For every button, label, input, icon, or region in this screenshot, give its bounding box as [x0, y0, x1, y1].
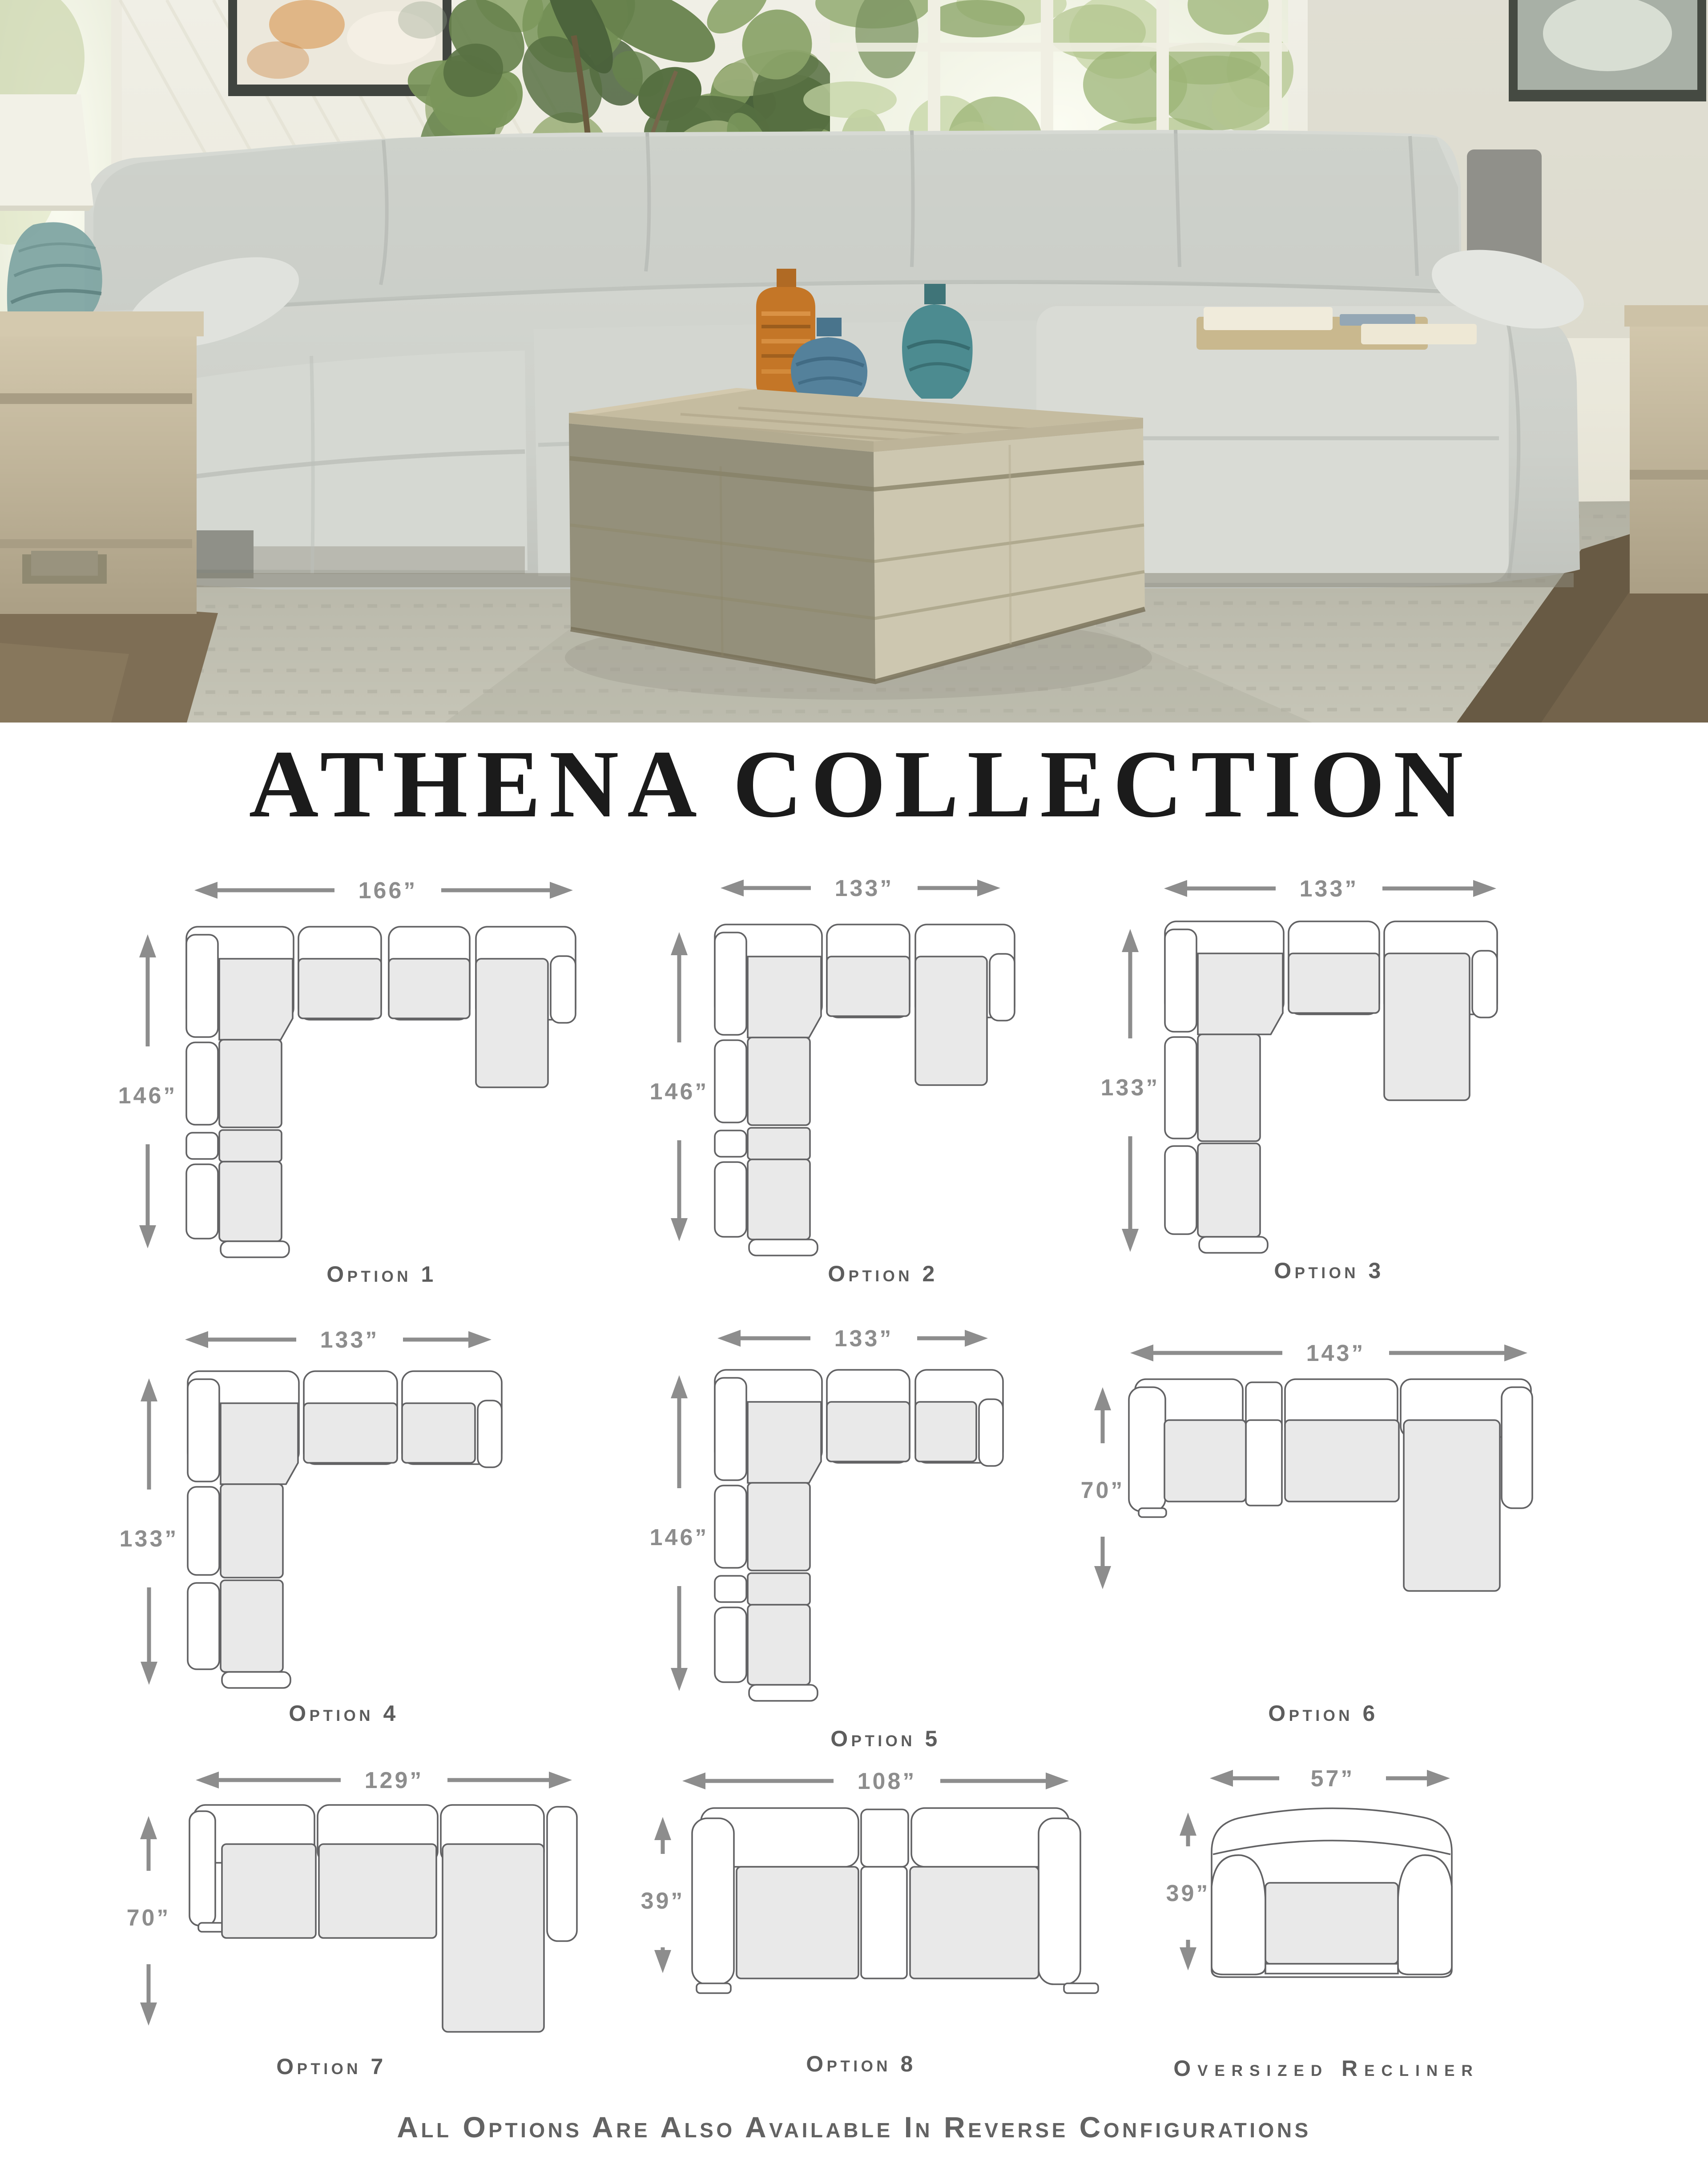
- svg-text:70”: 70”: [1081, 1478, 1125, 1503]
- svg-text:108”: 108”: [858, 1768, 917, 1794]
- svg-text:146”: 146”: [650, 1525, 709, 1550]
- svg-text:57”: 57”: [1311, 1766, 1355, 1792]
- svg-text:143”: 143”: [1306, 1340, 1366, 1366]
- svg-text:70”: 70”: [127, 1905, 171, 1931]
- svg-text:133”: 133”: [320, 1327, 379, 1353]
- svg-text:133”: 133”: [120, 1526, 179, 1552]
- svg-text:166”: 166”: [359, 878, 418, 904]
- svg-text:133”: 133”: [835, 876, 894, 901]
- svg-text:39”: 39”: [1166, 1881, 1210, 1906]
- svg-text:146”: 146”: [650, 1079, 709, 1105]
- svg-text:129”: 129”: [365, 1768, 424, 1793]
- svg-text:133”: 133”: [1101, 1075, 1160, 1101]
- svg-text:39”: 39”: [641, 1888, 685, 1914]
- svg-text:146”: 146”: [118, 1083, 177, 1109]
- svg-text:133”: 133”: [834, 1326, 894, 1352]
- svg-text:133”: 133”: [1300, 876, 1359, 902]
